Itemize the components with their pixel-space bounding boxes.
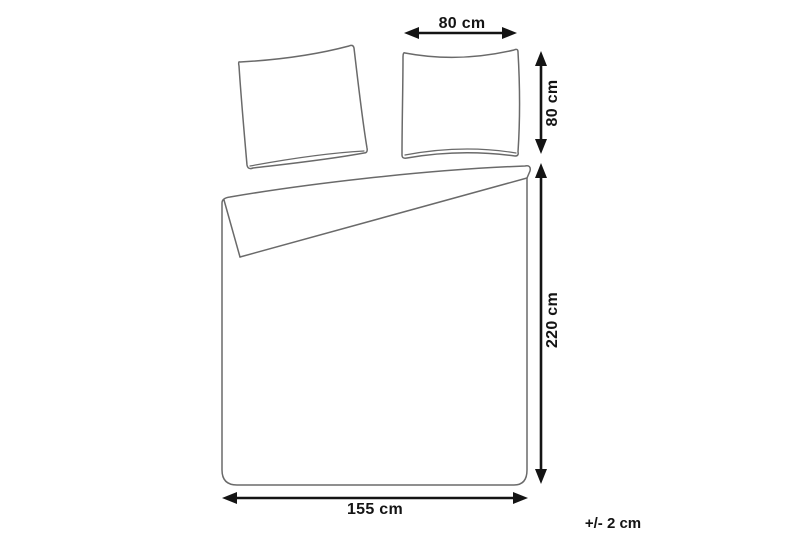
arrow-right-icon xyxy=(502,27,517,39)
dimension-pillow-width-label: 80 cm xyxy=(439,15,486,32)
dimension-duvet-length-label: 220 cm xyxy=(544,292,561,348)
pillowcase-right xyxy=(402,49,520,158)
dimension-pillow-height: 80 cm xyxy=(535,51,561,154)
dimension-duvet-width-label: 155 cm xyxy=(347,501,403,518)
pillowcase-right-outline xyxy=(402,49,520,158)
pillowcase-left-outline xyxy=(239,45,368,168)
duvet-cover-outline xyxy=(222,166,530,485)
pillowcase-left xyxy=(239,45,368,168)
arrow-left-icon xyxy=(222,492,237,504)
arrow-up-icon xyxy=(535,51,547,66)
arrow-down-icon xyxy=(535,139,547,154)
dimension-pillow-height-label: 80 cm xyxy=(544,80,561,127)
bedding-dimension-diagram: 80 cm 80 cm 220 cm 155 cm +/- 2 cm xyxy=(0,0,800,533)
arrow-left-icon xyxy=(404,27,419,39)
dimension-duvet-width: 155 cm xyxy=(222,492,528,518)
tolerance-label: +/- 2 cm xyxy=(585,515,641,532)
arrow-down-icon xyxy=(535,469,547,484)
dimension-pillow-width: 80 cm xyxy=(404,15,517,39)
arrow-up-icon xyxy=(535,163,547,178)
diagram-canvas: 80 cm 80 cm 220 cm 155 cm +/- 2 cm xyxy=(0,0,800,533)
arrow-right-icon xyxy=(513,492,528,504)
duvet-cover xyxy=(222,166,530,485)
dimension-duvet-length: 220 cm xyxy=(535,163,561,484)
